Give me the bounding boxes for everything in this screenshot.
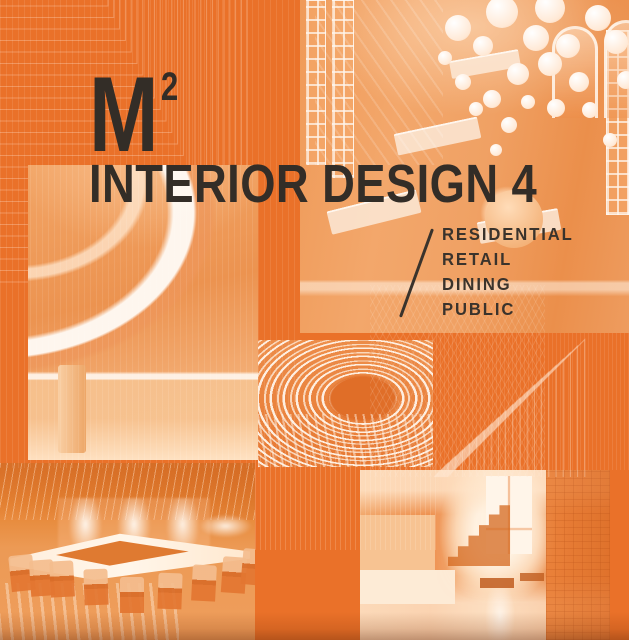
category-retail: RETAIL — [442, 247, 574, 272]
dining-chair — [49, 560, 75, 597]
category-dining: DINING — [442, 272, 574, 297]
pendant-light-sphere — [556, 34, 580, 58]
home-counter — [360, 570, 455, 604]
series-logo-exponent: 2 — [161, 65, 178, 109]
pendant-light-sphere — [603, 133, 617, 147]
home-staircase — [448, 500, 510, 566]
pendant-light-sphere — [535, 0, 565, 23]
diagonal-stripes — [315, 0, 443, 165]
dining-chair — [120, 577, 144, 613]
dining-chair — [191, 564, 217, 601]
pendant-light-sphere — [483, 90, 501, 108]
pendant-light-sphere — [617, 71, 629, 89]
pendant-light-sphere — [547, 99, 565, 117]
pendant-light-sphere — [469, 102, 483, 116]
book-title: INTERIOR DESIGN 4 — [89, 157, 537, 211]
pendant-light-sphere — [523, 25, 549, 51]
category-list: RESIDENTIAL RETAIL DINING PUBLIC — [442, 222, 574, 322]
pendant-light-sphere — [507, 63, 529, 85]
pendant-light-sphere — [585, 5, 611, 31]
pendant-light-sphere — [501, 117, 517, 133]
pendant-light-sphere — [521, 95, 535, 109]
home-bench — [480, 578, 514, 588]
pendant-light-sphere — [582, 102, 598, 118]
dining-chair — [240, 548, 255, 586]
dining-chair — [83, 569, 108, 606]
category-residential: RESIDENTIAL — [442, 222, 574, 247]
pendant-light-sphere — [604, 30, 628, 54]
dining-chair — [157, 573, 182, 610]
book-cover: M2 INTERIOR DESIGN 4 RESIDENTIAL RETAIL … — [0, 0, 629, 640]
bottom-shadow — [0, 612, 629, 640]
series-logo: M2 — [89, 61, 178, 168]
pendant-light-sphere — [455, 74, 471, 90]
home-bench — [520, 573, 544, 581]
pendant-light-sphere — [473, 36, 493, 56]
pendant-light-sphere — [538, 52, 562, 76]
pendant-light-sphere — [445, 15, 471, 41]
pendant-light-sphere — [486, 0, 518, 28]
pendant-light-sphere — [569, 72, 589, 92]
category-public: PUBLIC — [442, 297, 574, 322]
